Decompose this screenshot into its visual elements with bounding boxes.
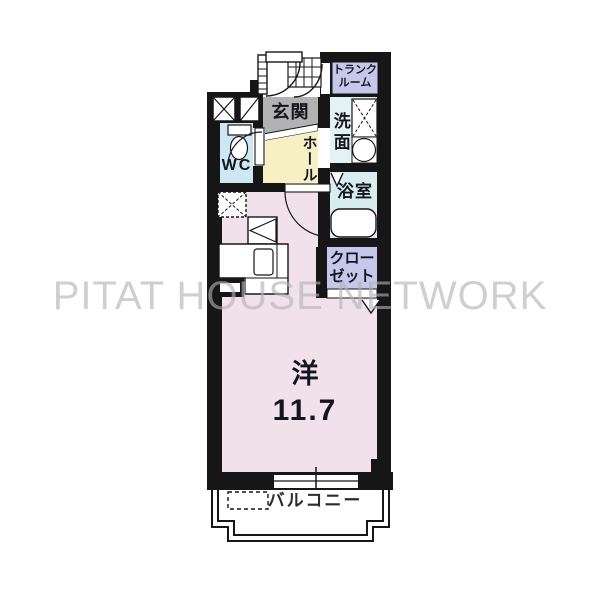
washroom-door-opening: [318, 128, 330, 168]
washroom-label: 洗面: [330, 102, 349, 164]
kitchen-sink: [254, 249, 273, 275]
toilet-tank: [228, 125, 251, 135]
watermark-text: PITAT HOUSE NETWORK: [0, 274, 600, 319]
washroom-fixtures: [352, 99, 377, 163]
entrance-label: 玄関: [263, 103, 318, 123]
trunk-room-label-line2: ルーム: [332, 77, 378, 90]
closet-label-line1: クロー: [327, 250, 377, 268]
entrance-door-leaf: [266, 52, 302, 62]
western-room-size-label: 11.7: [260, 394, 350, 427]
trunk-room-label-line1: トランク: [332, 64, 378, 77]
wc-label: WC: [220, 157, 254, 175]
room-door-leaf: [285, 184, 330, 192]
bathtub: [331, 209, 376, 237]
bathroom-label: 浴室: [332, 183, 378, 202]
entrance-porch: [258, 52, 330, 97]
wc-door-leaf: [255, 128, 264, 165]
floorplan-canvas: 玄関 トランク ルーム 洗面 浴室 WC ホール クロー ゼット 洋 11.7 …: [0, 0, 600, 600]
sink-basin: [353, 139, 376, 162]
balcony-label: バルコニー: [265, 492, 365, 511]
hall-label: ホール: [300, 133, 317, 185]
trunk-room-label: トランク ルーム: [332, 64, 378, 90]
western-room-type-label: 洋: [275, 360, 335, 390]
balcony-equipment-space: [228, 492, 268, 509]
